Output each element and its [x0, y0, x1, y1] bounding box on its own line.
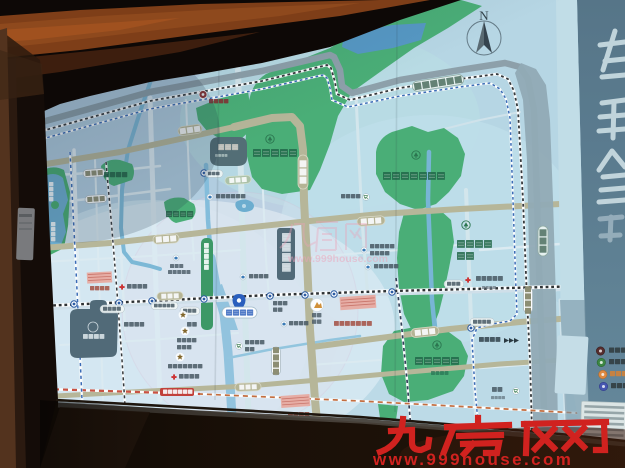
svg-text:www.999house.com: www.999house.com	[372, 450, 573, 468]
